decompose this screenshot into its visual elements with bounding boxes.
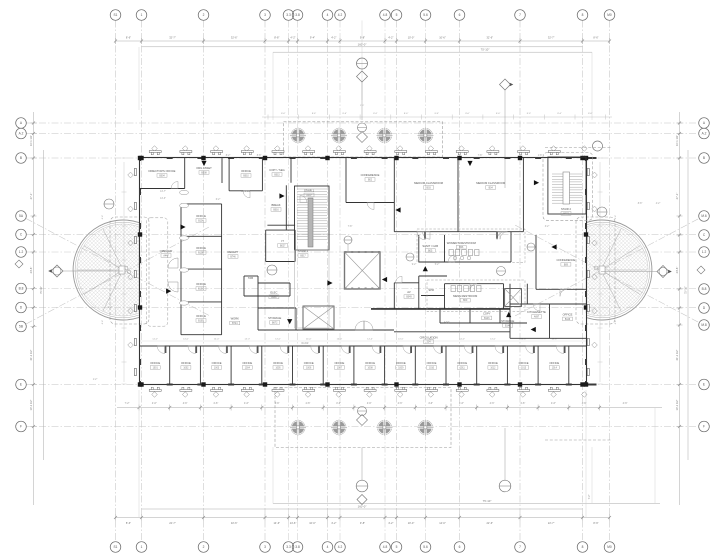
svg-text:OFFICE: OFFICE (181, 361, 191, 365)
svg-text:5B: 5B (19, 325, 23, 329)
svg-text:8: 8 (582, 13, 584, 17)
svg-text:75'-10": 75'-10" (483, 499, 492, 503)
svg-text:MEDIUM CLASSROOM: MEDIUM CLASSROOM (476, 181, 506, 185)
svg-text:8'-8": 8'-8" (257, 155, 262, 157)
svg-text:E: E (20, 383, 22, 387)
svg-text:14'-3": 14'-3" (160, 198, 166, 200)
svg-text:7'-2": 7'-2" (125, 402, 130, 405)
svg-text:4'-2": 4'-2" (331, 521, 336, 525)
svg-text:4'-6": 4'-6" (152, 402, 157, 405)
svg-text:14'-0": 14'-0" (459, 339, 465, 341)
svg-text:14'-0": 14'-0" (521, 339, 527, 341)
svg-text:B06: B06 (459, 247, 464, 249)
svg-text:B007: B007 (563, 213, 569, 215)
svg-text:8'-6": 8'-6" (593, 521, 598, 525)
svg-text:AV: AV (407, 290, 411, 294)
svg-text:14'-0": 14'-0" (152, 339, 158, 341)
svg-text:B686: B686 (271, 297, 277, 299)
svg-text:10'-1 1/2": 10'-1 1/2" (29, 135, 33, 146)
svg-text:CONFERENCE: CONFERENCE (361, 173, 380, 177)
svg-text:8: 8 (582, 545, 584, 549)
svg-text:1007: 1007 (337, 367, 343, 369)
svg-text:9'-8": 9'-8" (360, 36, 365, 40)
svg-text:4'-2": 4'-2" (331, 36, 336, 40)
svg-text:OFFICE: OFFICE (304, 361, 314, 365)
svg-text:1002: 1002 (183, 367, 189, 369)
svg-text:22'-7": 22'-7" (548, 521, 555, 525)
svg-text:4'-2": 4'-2" (656, 203, 661, 205)
svg-text:41'-1 1/2": 41'-1 1/2" (29, 349, 33, 360)
svg-text:OFFICE: OFFICE (396, 361, 406, 365)
svg-text:B: B (20, 156, 22, 160)
svg-text:CONFERENCE: CONFERENCE (556, 258, 575, 262)
svg-text:1003: 1003 (214, 367, 220, 369)
svg-text:4'-4": 4'-4" (102, 320, 104, 325)
svg-text:F: F (703, 425, 705, 429)
svg-text:B746: B746 (230, 256, 236, 258)
svg-text:A447: A447 (163, 254, 169, 257)
svg-text:24'-6": 24'-6" (29, 267, 33, 274)
svg-text:B10C: B10C (198, 288, 204, 290)
svg-text:STAIR 1: STAIR 1 (304, 189, 314, 193)
svg-text:5: 5 (396, 13, 398, 17)
svg-text:WORK: WORK (231, 317, 240, 321)
svg-text:1'-8": 1'-8" (538, 155, 543, 157)
svg-text:10'-0": 10'-0" (408, 36, 415, 40)
svg-text:7'-2": 7'-2" (588, 494, 591, 499)
svg-text:27'-1": 27'-1" (675, 193, 679, 200)
svg-text:14'-0": 14'-0" (552, 339, 558, 341)
svg-text:B004: B004 (159, 175, 165, 177)
svg-text:14'-0": 14'-0" (398, 339, 404, 341)
svg-text:8'-8": 8'-8" (274, 36, 279, 40)
svg-text:OFFICE: OFFICE (196, 246, 206, 250)
svg-text:F: F (20, 425, 22, 429)
svg-text:7'-8": 7'-8" (348, 226, 353, 228)
svg-text:SPR: SPR (428, 288, 434, 292)
svg-text:10'-6": 10'-6" (309, 521, 316, 525)
svg-text:22'-6": 22'-6" (486, 521, 493, 525)
svg-text:4: 4 (327, 13, 329, 17)
svg-text:4.2: 4.2 (338, 545, 343, 549)
svg-text:4'-6": 4'-6" (275, 402, 280, 405)
svg-text:1: 1 (141, 545, 143, 549)
svg-text:B010: B010 (243, 175, 249, 177)
svg-text:A.2: A.2 (702, 132, 707, 136)
svg-text:5: 5 (396, 545, 398, 549)
svg-text:IT: IT (282, 239, 285, 243)
svg-text:1013: 1013 (521, 367, 527, 369)
svg-text:4'-2": 4'-2" (388, 521, 393, 525)
svg-text:32'-6": 32'-6" (231, 521, 238, 525)
svg-text:9'-4": 9'-4" (310, 36, 315, 40)
svg-text:32'-7": 32'-7" (548, 36, 555, 40)
svg-text:OFFICE: OFFICE (457, 361, 467, 365)
svg-text:COPY: COPY (483, 312, 491, 316)
svg-text:OFFICE: OFFICE (196, 314, 206, 318)
svg-text:OFFICE: OFFICE (196, 214, 206, 218)
svg-text:5'-2": 5'-2" (435, 264, 440, 266)
svg-text:10'-1 1/2": 10'-1 1/2" (675, 135, 679, 146)
svg-text:OFFICE: OFFICE (427, 361, 437, 365)
svg-text:B10A: B10A (198, 219, 204, 222)
svg-text:B09: B09 (463, 300, 468, 302)
svg-text:8'-6": 8'-6" (343, 113, 348, 115)
svg-text:9'-2": 9'-2" (412, 264, 417, 266)
svg-text:32'-6": 32'-6" (486, 36, 493, 40)
svg-text:BREAK: BREAK (271, 203, 280, 207)
svg-text:8'-6": 8'-6" (557, 113, 562, 115)
svg-text:OFFICE: OFFICE (150, 361, 160, 365)
svg-text:4: 4 (327, 545, 329, 549)
svg-text:B: B (703, 156, 705, 160)
svg-text:OFFICE: OFFICE (488, 361, 498, 365)
svg-text:M.6: M.6 (701, 214, 707, 218)
svg-text:2: 2 (203, 13, 205, 17)
svg-text:32'-7": 32'-7" (169, 36, 176, 40)
svg-text:OFFICE: OFFICE (549, 361, 559, 365)
svg-text:8'-2": 8'-2" (226, 155, 231, 157)
svg-text:B.8: B.8 (702, 287, 707, 291)
svg-text:RL/DR: RL/DR (302, 343, 309, 345)
svg-text:OFFICE: OFFICE (365, 361, 375, 365)
svg-text:14'-0": 14'-0" (490, 339, 496, 341)
svg-text:9'-8": 9'-8" (360, 521, 365, 525)
svg-text:8'-6": 8'-6" (435, 113, 440, 115)
svg-text:B027: B027 (280, 245, 286, 247)
svg-text:1012: 1012 (490, 367, 496, 369)
svg-text:1.2: 1.2 (702, 250, 707, 254)
svg-text:A697: A697 (534, 316, 540, 319)
svg-text:ELEC: ELEC (270, 290, 277, 294)
svg-text:M0: M0 (607, 545, 612, 549)
svg-text:10'-1 1/2": 10'-1 1/2" (675, 399, 679, 410)
svg-text:7'-8": 7'-8" (478, 155, 483, 157)
svg-text:B03: B03 (427, 187, 432, 189)
svg-text:COPY / SEG: COPY / SEG (269, 168, 284, 172)
svg-text:4'-6": 4'-6" (623, 402, 628, 405)
svg-text:OFFICE: OFFICE (519, 361, 529, 365)
svg-text:10'-0": 10'-0" (408, 521, 415, 525)
svg-text:32'-6": 32'-6" (231, 36, 238, 40)
svg-text:A147: A147 (306, 194, 312, 197)
svg-text:8'-6": 8'-6" (527, 113, 532, 115)
svg-text:B017: B017 (300, 255, 306, 257)
svg-text:14'-6": 14'-6" (290, 521, 297, 525)
svg-text:1010: 1010 (429, 367, 435, 369)
svg-text:OFFICE: OFFICE (273, 361, 283, 365)
svg-text:14'-0": 14'-0" (214, 339, 220, 341)
svg-text:8'-6": 8'-6" (126, 521, 131, 525)
svg-text:75'-10": 75'-10" (684, 286, 688, 294)
svg-text:4'-6": 4'-6" (367, 402, 372, 405)
svg-text:B10D: B10D (198, 320, 204, 322)
svg-text:S1: S1 (114, 13, 118, 17)
svg-text:B015: B015 (274, 174, 280, 176)
svg-text:3.8: 3.8 (295, 545, 300, 549)
svg-text:4'-4": 4'-4" (615, 215, 617, 220)
svg-text:B10B: B10B (198, 252, 204, 254)
svg-text:B672: B672 (272, 322, 278, 324)
svg-text:75'-10": 75'-10" (481, 48, 490, 52)
svg-text:1014: 1014 (552, 367, 558, 369)
svg-text:1001: 1001 (153, 367, 159, 369)
svg-text:B146: B146 (484, 318, 490, 320)
svg-text:14'-0": 14'-0" (367, 339, 373, 341)
svg-text:M0: M0 (607, 13, 612, 17)
svg-text:1004: 1004 (245, 367, 251, 369)
svg-text:SANIT / CAB: SANIT / CAB (422, 244, 438, 248)
svg-text:DIRECTOR'S OFFICE: DIRECTOR'S OFFICE (149, 169, 176, 173)
svg-text:RECEPT: RECEPT (228, 250, 239, 254)
svg-text:4'-2": 4'-2" (388, 36, 393, 40)
svg-text:4'-6": 4'-6" (459, 402, 464, 405)
svg-text:7: 7 (519, 13, 521, 17)
svg-text:4.8: 4.8 (383, 13, 388, 17)
svg-text:1006: 1006 (306, 367, 312, 369)
svg-text:14'-0": 14'-0" (245, 339, 251, 341)
svg-text:3'-2": 3'-2" (545, 226, 550, 228)
svg-text:1'-2": 1'-2" (108, 307, 113, 309)
svg-text:7: 7 (519, 545, 521, 549)
svg-text:1005: 1005 (275, 367, 281, 369)
svg-text:160'-0": 160'-0" (358, 505, 367, 509)
svg-text:4'-6": 4'-6" (183, 402, 188, 405)
svg-text:1011: 1011 (460, 367, 466, 369)
svg-text:4'-6": 4'-6" (551, 402, 556, 405)
svg-text:27'-1": 27'-1" (29, 193, 33, 200)
svg-text:6'-2": 6'-2" (216, 199, 221, 201)
svg-text:B724: B724 (232, 323, 238, 325)
svg-text:3.8: 3.8 (295, 13, 300, 17)
svg-text:E: E (703, 383, 705, 387)
svg-text:OPEN AIR: OPEN AIR (160, 249, 173, 253)
svg-text:12'-1 1/2": 12'-1 1/2" (241, 191, 251, 193)
svg-text:4'-6": 4'-6" (398, 402, 403, 405)
svg-text:ACC: ACC (444, 321, 450, 325)
svg-text:1008: 1008 (368, 367, 374, 369)
svg-text:M.8: M.8 (701, 323, 707, 327)
svg-text:1009: 1009 (398, 367, 404, 369)
svg-text:5.6: 5.6 (423, 13, 428, 17)
svg-text:8'-6": 8'-6" (373, 113, 378, 115)
svg-text:8'-6": 8'-6" (593, 36, 598, 40)
svg-text:8'-6": 8'-6" (465, 113, 470, 115)
svg-text:B05: B05 (428, 250, 433, 252)
svg-text:B049: B049 (406, 297, 412, 299)
svg-text:B008: B008 (201, 172, 207, 174)
svg-text:3.3: 3.3 (286, 545, 291, 549)
svg-text:4.2: 4.2 (338, 13, 343, 17)
svg-text:10'-6": 10'-6" (439, 36, 446, 40)
svg-text:4'-6": 4'-6" (336, 402, 341, 405)
svg-text:8'-6": 8'-6" (404, 113, 409, 115)
svg-text:5.6: 5.6 (423, 545, 428, 549)
svg-text:OFFICE: OFFICE (241, 169, 251, 173)
svg-text:ORG ASSET: ORG ASSET (196, 166, 212, 170)
svg-text:STAIR 1: STAIR 1 (298, 249, 308, 253)
svg-text:WOMEN'S RESTROOM: WOMEN'S RESTROOM (447, 241, 477, 245)
svg-text:8'-6": 8'-6" (496, 113, 501, 115)
svg-text:STORAGE: STORAGE (501, 319, 514, 323)
svg-text:B146: B146 (565, 319, 571, 321)
svg-text:14'-6": 14'-6" (439, 521, 446, 525)
svg-text:OFFICE: OFFICE (334, 361, 344, 365)
svg-text:4'-6": 4'-6" (213, 402, 218, 405)
svg-text:8'-6": 8'-6" (312, 113, 317, 115)
svg-text:14'-0": 14'-0" (337, 339, 343, 341)
svg-text:OFFICE: OFFICE (212, 361, 222, 365)
svg-text:6: 6 (459, 13, 461, 17)
svg-text:10'-1 1/2": 10'-1 1/2" (29, 399, 33, 410)
svg-text:4'-4": 4'-4" (615, 320, 617, 325)
svg-text:75'-10": 75'-10" (39, 286, 43, 294)
svg-text:1.2: 1.2 (19, 250, 24, 254)
svg-text:STAIR 2: STAIR 2 (561, 207, 571, 211)
svg-text:4'-6": 4'-6" (306, 402, 311, 405)
svg-text:B09: B09 (564, 264, 569, 266)
svg-text:B.8: B.8 (19, 287, 24, 291)
svg-text:4'-2": 4'-2" (290, 36, 295, 40)
svg-text:3: 3 (264, 13, 266, 17)
svg-text:4'-4": 4'-4" (102, 215, 104, 220)
svg-text:6: 6 (459, 545, 461, 549)
svg-text:14'-6": 14'-6" (273, 521, 280, 525)
svg-text:OFFICE: OFFICE (196, 282, 206, 286)
svg-text:OFFICE: OFFICE (242, 361, 252, 365)
svg-text:4'-6": 4'-6" (490, 402, 495, 405)
svg-text:8'-6": 8'-6" (281, 113, 286, 115)
svg-text:8'-6": 8'-6" (126, 36, 131, 40)
svg-text:8'-6": 8'-6" (588, 113, 593, 115)
svg-text:B016: B016 (273, 209, 279, 211)
svg-text:B140: B140 (505, 325, 511, 327)
svg-text:14'-0": 14'-0" (306, 339, 312, 341)
svg-text:14'-7": 14'-7" (160, 191, 166, 193)
svg-text:S1: S1 (114, 545, 118, 549)
svg-text:8'-8": 8'-8" (638, 203, 643, 205)
svg-text:KITCHENETTE: KITCHENETTE (527, 310, 546, 314)
svg-text:4'-6": 4'-6" (520, 402, 525, 405)
svg-text:B04: B04 (489, 187, 494, 189)
svg-text:4'-6": 4'-6" (428, 402, 433, 405)
svg-text:4.8: 4.8 (383, 545, 388, 549)
svg-text:A.2: A.2 (19, 132, 24, 136)
svg-text:OFFICE: OFFICE (563, 313, 573, 317)
svg-text:14'-0": 14'-0" (183, 339, 189, 341)
svg-text:TAB: TAB (248, 276, 253, 280)
svg-text:3: 3 (264, 545, 266, 549)
svg-text:24'-6": 24'-6" (675, 267, 679, 274)
svg-text:MEDIUM CLASSROOM: MEDIUM CLASSROOM (414, 181, 444, 185)
svg-text:STORAGE: STORAGE (268, 316, 281, 320)
svg-text:1'-2": 1'-2" (93, 379, 98, 381)
svg-text:14'-0": 14'-0" (275, 339, 281, 341)
svg-text:1: 1 (141, 13, 143, 17)
svg-text:MENS RESTROOM: MENS RESTROOM (453, 294, 478, 298)
svg-text:3.3: 3.3 (286, 13, 291, 17)
svg-text:2: 2 (203, 545, 205, 549)
svg-text:4'-6": 4'-6" (244, 402, 249, 405)
svg-text:CIRCULATION: CIRCULATION (420, 335, 438, 339)
svg-text:41'-1 1/2": 41'-1 1/2" (675, 349, 679, 360)
svg-text:B02: B02 (368, 179, 373, 181)
svg-text:22'-7": 22'-7" (169, 521, 176, 525)
